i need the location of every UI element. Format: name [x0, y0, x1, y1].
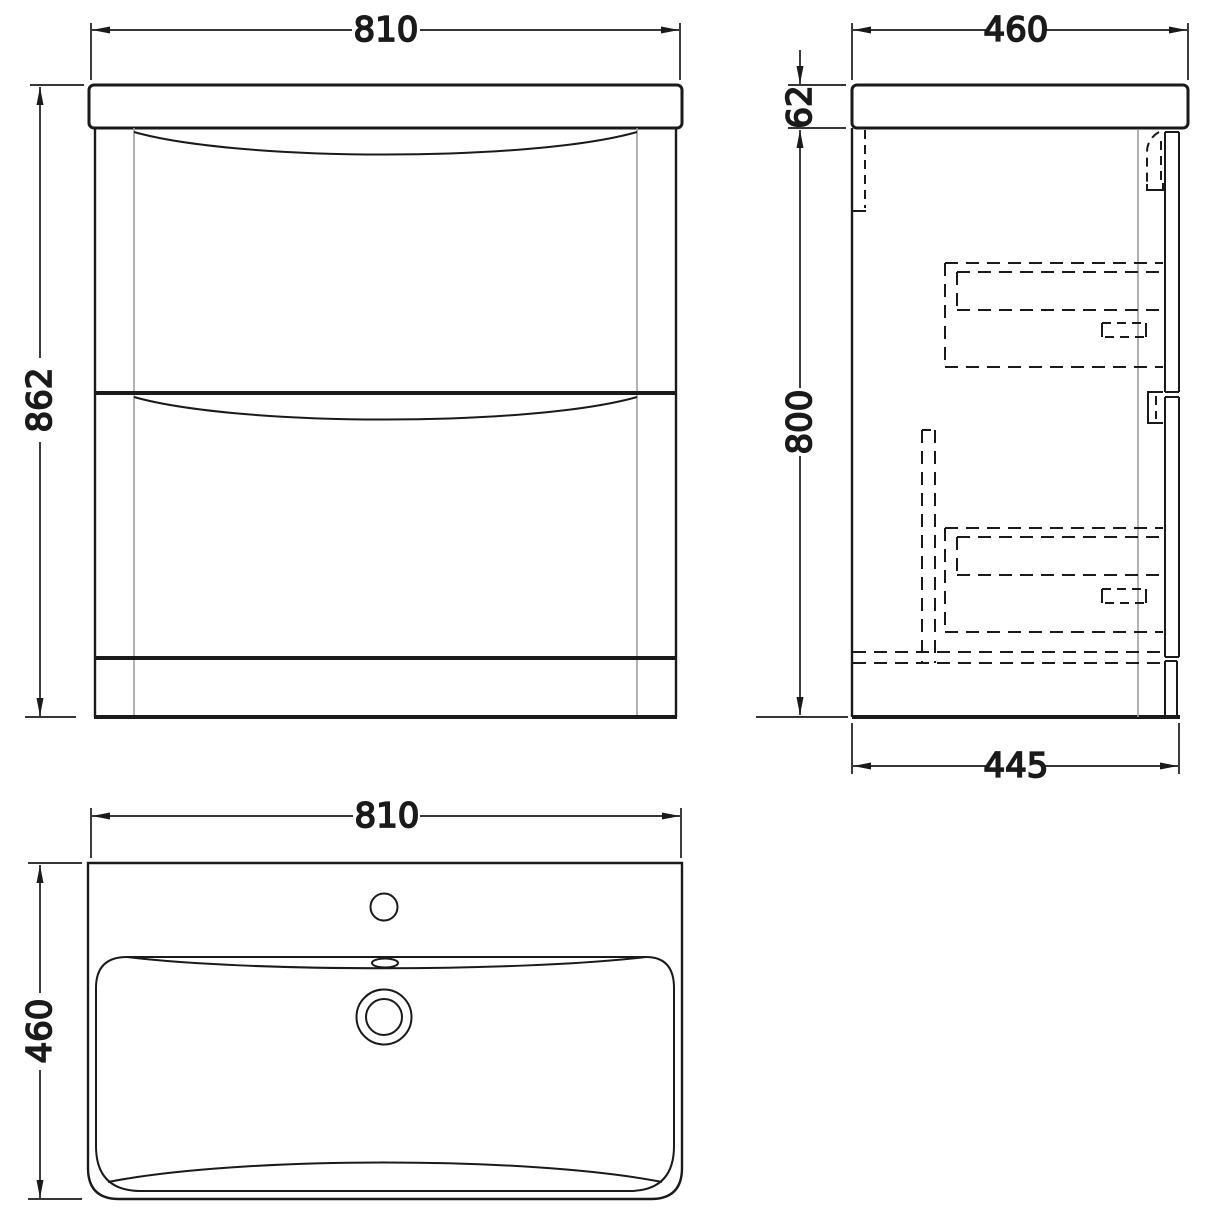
rear-bracket-hidden	[852, 130, 866, 211]
side-top-width-label: 460	[984, 10, 1049, 50]
base-depth-dimension: 445	[852, 723, 1179, 786]
plinth-front-panel	[1165, 661, 1177, 717]
front-height-dimension: 862	[20, 85, 84, 717]
overflow-slot	[372, 959, 398, 968]
plan-width-label: 810	[355, 796, 420, 836]
drain-outer-ring	[357, 990, 412, 1045]
bowl-outline	[96, 957, 674, 1191]
tap-hole	[371, 894, 398, 921]
upper-runner-bracket-hidden	[1147, 132, 1163, 190]
side-worktop	[852, 85, 1188, 128]
bracket-line	[1147, 183, 1163, 190]
plan-depth-dimension: 460	[20, 863, 82, 1199]
upper-drawer-front-panel	[1165, 132, 1179, 392]
cabinet-height-label: 800	[780, 390, 820, 455]
middle-runner-bracket	[1148, 392, 1163, 423]
bowl-floor-curve	[108, 1163, 662, 1183]
basin-plan-view: 810 460	[20, 796, 682, 1199]
plinth-hidden-lines	[853, 652, 1163, 663]
technical-drawing-canvas: 810 862 460	[0, 0, 1224, 1224]
drawer-runner-hidden	[1102, 323, 1146, 337]
upper-drawer-box-hidden	[945, 263, 1163, 367]
front-width-dimension: 810	[91, 10, 680, 80]
worktop-thickness-label: 62	[780, 85, 820, 128]
worktop-thickness-dimension: 62	[780, 50, 846, 129]
front-view: 810 862	[20, 10, 682, 717]
front-height-label: 862	[20, 368, 60, 433]
side-top-width-dimension: 460	[852, 10, 1188, 80]
lower-drawer-front-panel	[1165, 397, 1179, 657]
vanity-drawing-svg: 810 862 460	[0, 0, 1224, 1224]
lower-drawer-handle-curve	[134, 397, 637, 420]
side-view: 460 62 800 445	[756, 10, 1188, 786]
basin-outer-outline	[88, 863, 682, 1199]
drawer-runner-hidden	[1102, 589, 1146, 603]
hidden-line	[1147, 132, 1159, 184]
drain-inner-ring	[366, 999, 402, 1035]
base-depth-label: 445	[984, 746, 1049, 786]
front-worktop	[89, 85, 682, 128]
plan-depth-label: 460	[20, 999, 60, 1064]
plan-width-dimension: 810	[91, 796, 681, 858]
waste-pipe-cutout-hidden	[922, 430, 935, 663]
lower-drawer-box-hidden	[945, 528, 1163, 632]
front-width-label: 810	[354, 10, 419, 50]
upper-drawer-handle-curve	[134, 132, 637, 155]
cabinet-height-dimension: 800	[756, 130, 848, 717]
